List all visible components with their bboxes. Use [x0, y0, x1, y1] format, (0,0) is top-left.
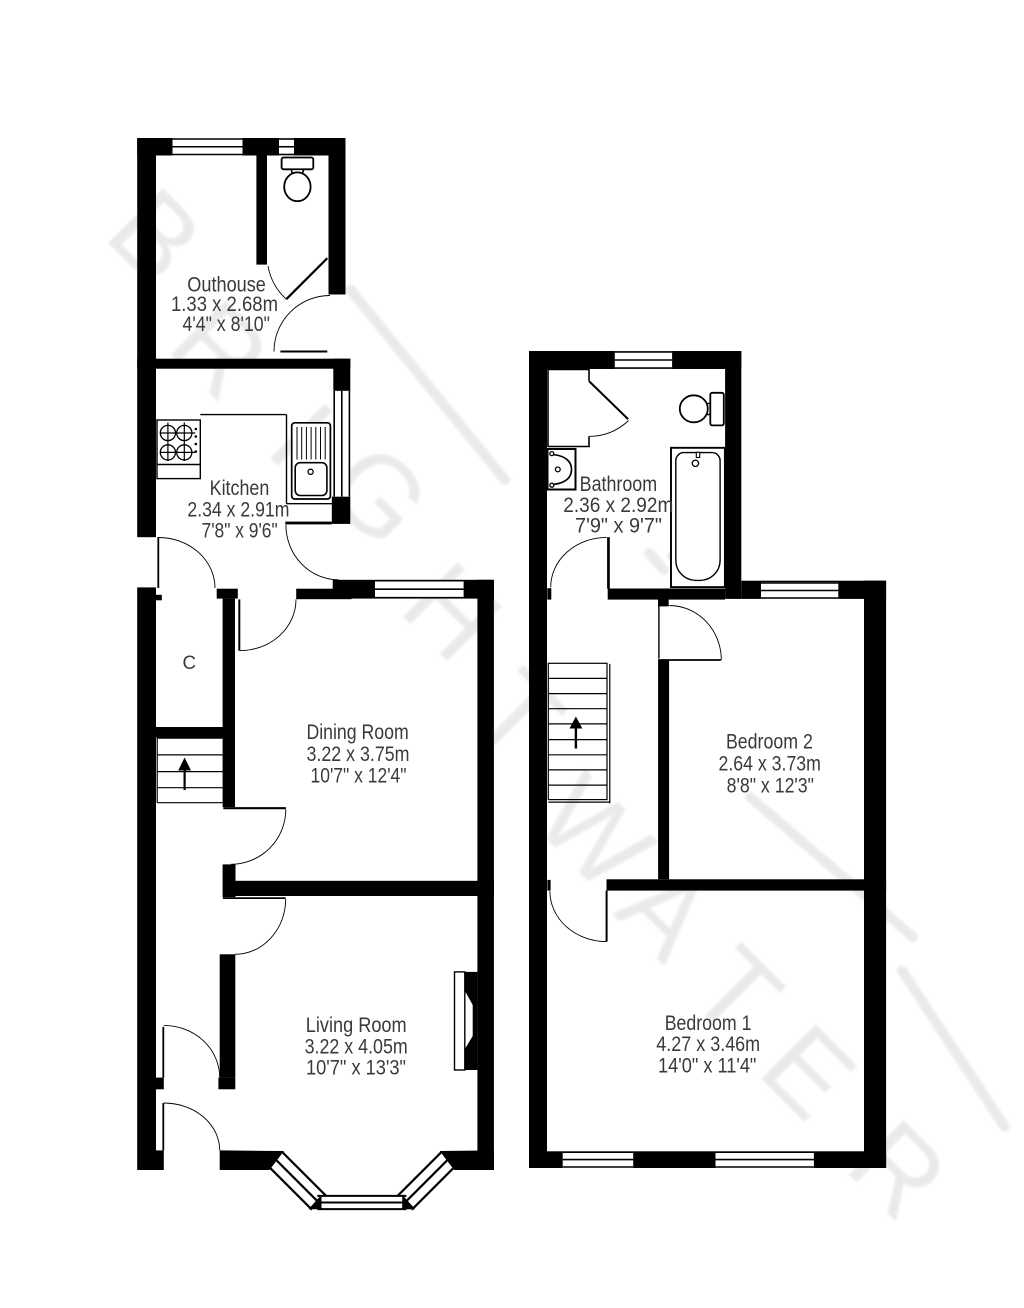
svg-text:C: C — [182, 653, 196, 674]
svg-text:Bathroom: Bathroom — [580, 473, 658, 496]
svg-text:Bedroom 1: Bedroom 1 — [665, 1012, 752, 1035]
svg-text:Bedroom 2: Bedroom 2 — [726, 731, 813, 754]
svg-text:2.64 x 3.73m: 2.64 x 3.73m — [719, 753, 821, 776]
svg-text:10'7" x 13'3": 10'7" x 13'3" — [306, 1057, 406, 1080]
svg-text:7'8" x 9'6": 7'8" x 9'6" — [202, 520, 278, 543]
svg-text:7'9" x 9'7": 7'9" x 9'7" — [575, 514, 662, 537]
svg-text:3.22 x 3.75m: 3.22 x 3.75m — [307, 743, 410, 766]
svg-text:2.36 x 2.92m: 2.36 x 2.92m — [563, 494, 673, 517]
svg-text:4.27 x 3.46m: 4.27 x 3.46m — [656, 1033, 760, 1056]
svg-text:14'0" x 11'4": 14'0" x 11'4" — [658, 1055, 756, 1078]
svg-text:8'8" x 12'3": 8'8" x 12'3" — [727, 774, 814, 797]
svg-text:10'7" x 12'4": 10'7" x 12'4" — [311, 765, 407, 788]
svg-text:4'4" x 8'10": 4'4" x 8'10" — [182, 313, 270, 336]
svg-text:Living Room: Living Room — [306, 1014, 407, 1037]
svg-text:Dining Room: Dining Room — [306, 721, 408, 744]
svg-text:2.34 x 2.91m: 2.34 x 2.91m — [187, 499, 289, 522]
svg-text:3.22 x 4.05m: 3.22 x 4.05m — [305, 1035, 408, 1058]
svg-text:Kitchen: Kitchen — [210, 477, 270, 500]
